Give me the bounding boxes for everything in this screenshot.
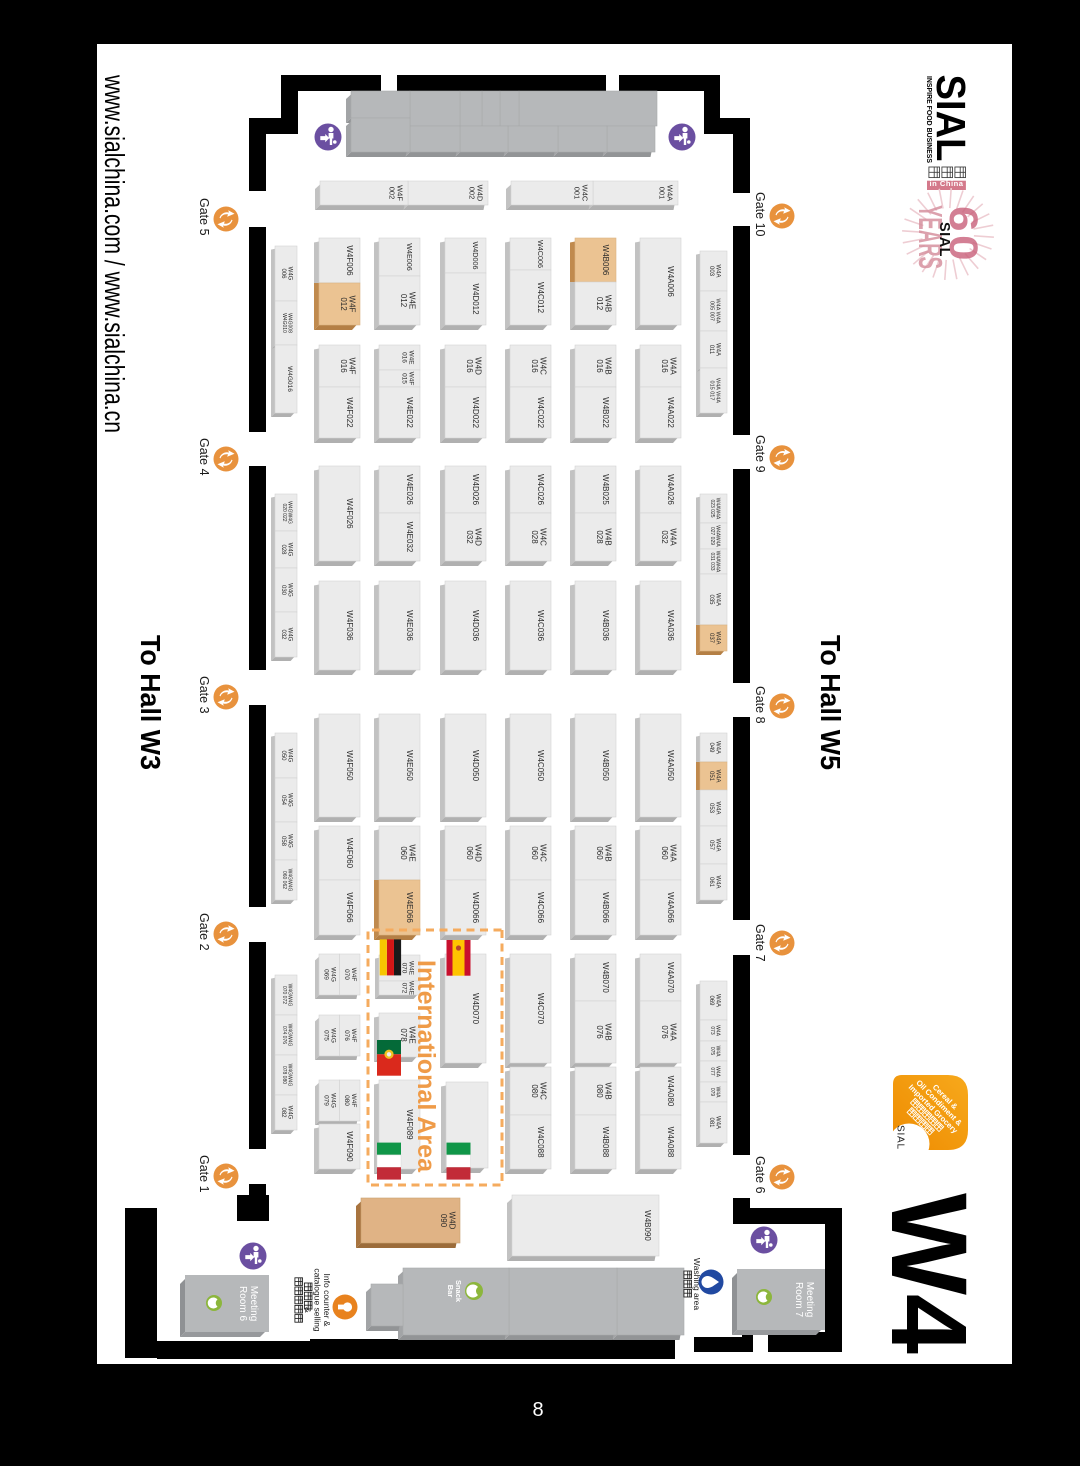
svg-text:W4GW4G020 022: W4GW4G020 022 <box>281 501 293 524</box>
svg-text:W4A016: W4A016 <box>660 357 678 375</box>
svg-text:W4AW4A027 029: W4AW4A027 029 <box>709 525 721 547</box>
svg-text:W4D012: W4D012 <box>471 283 480 315</box>
svg-text:W4A049: W4A049 <box>708 741 721 754</box>
svg-text:W4B016: W4B016 <box>595 357 613 374</box>
svg-text:W4A070: W4A070 <box>666 962 675 993</box>
svg-text:W4G075: W4G075 <box>322 1028 336 1043</box>
svg-text:W4D026: W4D026 <box>471 474 480 506</box>
svg-text:W4A036: W4A036 <box>666 610 675 641</box>
svg-text:W4A081: W4A081 <box>708 1116 721 1129</box>
svg-text:W4C060: W4C060 <box>530 844 548 862</box>
svg-text:W4F022: W4F022 <box>345 397 354 428</box>
svg-text:W4B022: W4B022 <box>601 397 610 428</box>
svg-text:MeetingRoom 6: MeetingRoom 6 <box>237 1286 259 1322</box>
svg-text:W4E022: W4E022 <box>405 397 414 428</box>
svg-text:International Area: International Area <box>412 960 440 1173</box>
svg-text:W4B025: W4B025 <box>601 474 610 505</box>
svg-text:W4A035: W4A035 <box>708 593 721 606</box>
svg-text:Gate 2: Gate 2 <box>197 913 211 951</box>
svg-text:W4F070: W4F070 <box>343 968 357 982</box>
svg-text:W4A060: W4A060 <box>660 844 678 862</box>
svg-text:W4A026: W4A026 <box>666 474 675 505</box>
svg-text:W4D036: W4D036 <box>471 610 480 642</box>
svg-text:www.sialchina.com / www.sialch: www.sialchina.com / www.sialchina.cn <box>99 74 130 433</box>
svg-text:W4F050: W4F050 <box>345 750 354 781</box>
svg-text:W4F016: W4F016 <box>339 358 357 375</box>
svg-text:W4B006: W4B006 <box>601 245 610 276</box>
svg-text:MeetingRoom 7: MeetingRoom 7 <box>793 1282 815 1318</box>
svg-text:W4GW4G070 072: W4GW4G070 072 <box>281 984 293 1007</box>
svg-text:W4G069: W4G069 <box>322 967 336 982</box>
svg-text:W4D066: W4D066 <box>471 892 480 924</box>
svg-text:in China: in China <box>930 179 964 188</box>
svg-text:INSPIRE FOOD BUSINESS: INSPIRE FOOD BUSINESS <box>925 76 934 163</box>
svg-text:8: 8 <box>532 1399 543 1421</box>
svg-text:W4D022: W4D022 <box>471 397 480 429</box>
svg-text:W4A032: W4A032 <box>660 528 678 546</box>
svg-text:W4C050: W4C050 <box>536 750 545 782</box>
svg-text:W4A080: W4A080 <box>666 1076 675 1107</box>
svg-text:W4B088: W4B088 <box>601 1127 610 1158</box>
svg-text:W4F015: W4F015 <box>400 372 414 386</box>
svg-text:To Hall W5: To Hall W5 <box>815 635 846 770</box>
svg-text:W4: W4 <box>869 1193 990 1354</box>
svg-text:W4GW4G060 062: W4GW4G060 062 <box>281 869 293 892</box>
svg-text:W4A053: W4A053 <box>708 801 721 814</box>
svg-text:W4F036: W4F036 <box>345 610 354 641</box>
svg-text:W4C088: W4C088 <box>536 1126 545 1158</box>
svg-text:W4B066: W4B066 <box>601 892 610 923</box>
svg-text:W4C006: W4C006 <box>536 240 545 268</box>
svg-text:SIAL: SIAL <box>895 1125 906 1150</box>
svg-text:To Hall W3: To Hall W3 <box>135 635 166 770</box>
svg-text:W4A001: W4A001 <box>657 185 674 201</box>
svg-text:W4D006: W4D006 <box>471 242 480 270</box>
svg-text:W4E006: W4E006 <box>405 243 414 271</box>
svg-text:W4C080: W4C080 <box>530 1082 548 1100</box>
svg-text:W4E060: W4E060 <box>399 844 417 861</box>
svg-text:W4B070: W4B070 <box>601 962 610 993</box>
svg-text:W4E012: W4E012 <box>399 292 417 309</box>
svg-text:W4C028: W4C028 <box>530 528 548 546</box>
svg-text:W4A069: W4A069 <box>708 994 721 1007</box>
svg-text:W4A022: W4A022 <box>666 397 675 428</box>
svg-text:Gate 8: Gate 8 <box>753 686 767 724</box>
svg-text:W4A006: W4A006 <box>666 266 675 297</box>
svg-text:W4A W4A005 007: W4A W4A005 007 <box>708 298 720 323</box>
svg-text:W4A011: W4A011 <box>708 343 721 356</box>
svg-text:W4C026: W4C026 <box>536 474 545 506</box>
svg-text:W4B060: W4B060 <box>595 844 613 861</box>
svg-text:W4G016: W4G016 <box>286 366 293 392</box>
svg-text:W4D060: W4D060 <box>465 844 483 862</box>
svg-text:W4F026: W4F026 <box>345 498 354 529</box>
svg-text:&: & <box>303 1307 313 1313</box>
svg-text:Washing area: Washing area <box>692 1258 702 1310</box>
svg-text:W4C012: W4C012 <box>536 282 545 314</box>
svg-text:W4B012: W4B012 <box>595 295 613 312</box>
svg-text:W4D050: W4D050 <box>471 750 480 782</box>
svg-text:Gate 6: Gate 6 <box>753 1156 767 1194</box>
svg-text:W4F090: W4F090 <box>345 1131 354 1162</box>
svg-text:W4F060: W4F060 <box>345 838 354 869</box>
svg-text:W4D090: W4D090 <box>439 1212 457 1230</box>
svg-text:W4B050: W4B050 <box>601 750 610 781</box>
svg-text:Gate 7: Gate 7 <box>753 924 767 962</box>
svg-text:W4A050: W4A050 <box>666 750 675 781</box>
svg-text:Gate 10: Gate 10 <box>753 192 767 237</box>
svg-text:W4F076: W4F076 <box>343 1029 357 1043</box>
svg-text:W4GW4G078 080: W4GW4G078 080 <box>281 1064 293 1087</box>
svg-text:W4B090: W4B090 <box>643 1210 652 1241</box>
svg-text:Info counter &catalogue sellin: Info counter &catalogue selling <box>313 1268 333 1332</box>
svg-text:W4E050: W4E050 <box>405 750 414 781</box>
svg-text:Gate 1: Gate 1 <box>197 1155 211 1193</box>
svg-text:W4A W4A015 017: W4A W4A015 017 <box>708 378 720 403</box>
svg-text:Gate 4: Gate 4 <box>197 438 211 476</box>
svg-text:W4C022: W4C022 <box>536 397 545 429</box>
svg-text:W4F066: W4F066 <box>345 892 354 923</box>
svg-text:W4B080: W4B080 <box>595 1082 613 1099</box>
svg-text:W4D032: W4D032 <box>465 528 483 546</box>
svg-text:W4F002: W4F002 <box>387 185 404 201</box>
svg-text:W4E026: W4E026 <box>405 474 414 505</box>
svg-text:W4A066: W4A066 <box>666 892 675 923</box>
svg-text:W4E036: W4E036 <box>405 610 414 641</box>
svg-text:W4E066: W4E066 <box>405 892 414 923</box>
svg-text:W4AW4A031 033: W4AW4A031 033 <box>709 551 721 573</box>
svg-text:W4AW4A023 025: W4AW4A023 025 <box>709 498 721 520</box>
svg-text:Gate 5: Gate 5 <box>197 198 211 236</box>
svg-text:W4A057: W4A057 <box>708 838 721 851</box>
svg-text:W4B036: W4B036 <box>601 610 610 641</box>
svg-text:W4B076: W4B076 <box>595 1023 613 1040</box>
svg-text:Gate 9: Gate 9 <box>753 435 767 473</box>
svg-text:W4C036: W4C036 <box>536 610 545 642</box>
svg-text:W4F012: W4F012 <box>339 296 357 313</box>
svg-text:W4A076: W4A076 <box>660 1023 678 1041</box>
svg-text:W4A088: W4A088 <box>666 1127 675 1158</box>
svg-text:W4GW4G074 076: W4GW4G074 076 <box>281 1024 293 1047</box>
svg-text:W4C070: W4C070 <box>536 993 545 1025</box>
svg-text:SIAL: SIAL <box>936 222 952 257</box>
svg-text:W4G079: W4G079 <box>322 1093 336 1108</box>
svg-text:Gate 3: Gate 3 <box>197 676 211 714</box>
svg-text:W4D016: W4D016 <box>465 357 483 375</box>
svg-text:W4C066: W4C066 <box>536 892 545 924</box>
svg-text:W4A037: W4A037 <box>708 631 721 644</box>
svg-text:W4D070: W4D070 <box>471 993 480 1025</box>
svg-text:W4E032: W4E032 <box>405 522 414 553</box>
svg-text:W4F006: W4F006 <box>345 245 354 276</box>
svg-text:W4B028: W4B028 <box>595 528 613 545</box>
svg-text:W4F080: W4F080 <box>343 1094 357 1108</box>
svg-text:W4A051: W4A051 <box>708 769 721 782</box>
svg-text:W4C016: W4C016 <box>530 357 548 375</box>
svg-text:W4G008W4G010: W4G008W4G010 <box>281 313 293 333</box>
svg-text:W4A003: W4A003 <box>708 264 721 277</box>
svg-text:W4A061: W4A061 <box>708 875 721 888</box>
